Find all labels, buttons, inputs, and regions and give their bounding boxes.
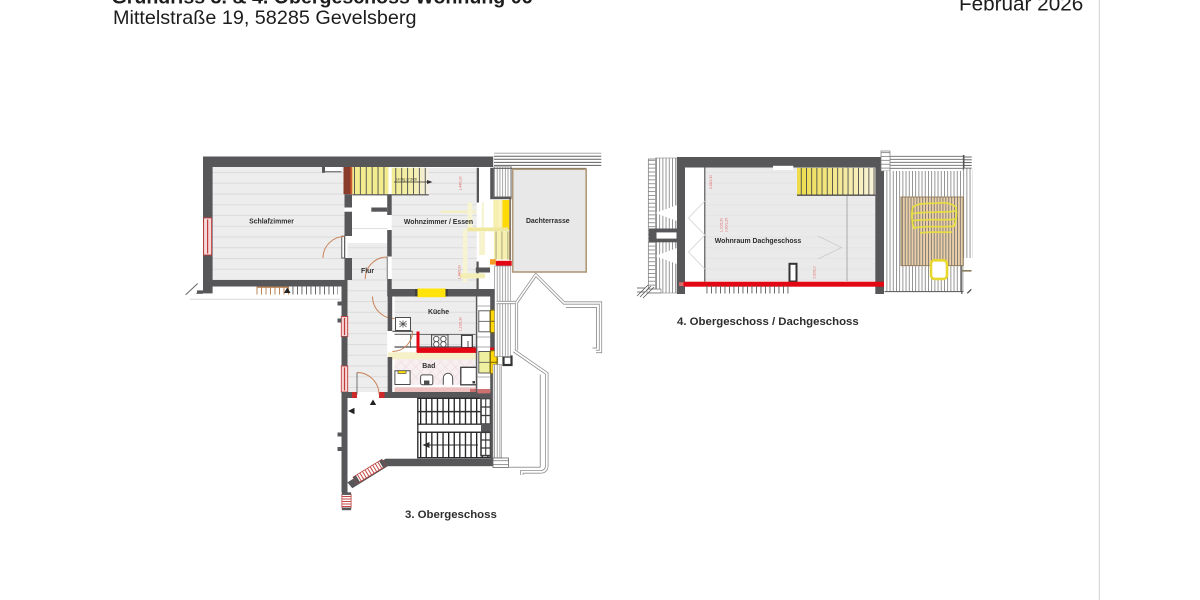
svg-text:1,44/2,30: 1,44/2,30 [458, 265, 462, 279]
svg-text:1,13/2,30: 1,13/2,30 [459, 317, 463, 331]
svg-text:1,44/2,30: 1,44/2,30 [459, 176, 463, 190]
svg-text:14 Stg 17,5/28: 14 Stg 17,5/28 [396, 178, 417, 182]
svg-text:0,90/2,0: 0,90/2,0 [813, 266, 817, 278]
svg-text:1,00/2,30: 1,00/2,30 [720, 218, 724, 232]
svg-text:Dachterrasse: Dachterrasse [526, 218, 570, 225]
svg-text:Schlafzimmer: Schlafzimmer [249, 219, 294, 226]
svg-text:2,26/1,30: 2,26/1,30 [709, 175, 713, 189]
svg-text:Küche: Küche [428, 309, 449, 316]
svg-text:0,90/1,25: 0,90/1,25 [725, 218, 729, 232]
svg-text:3. Obergeschoss: 3. Obergeschoss [405, 509, 497, 521]
svg-text:Wohnraum Dachgeschoss: Wohnraum Dachgeschoss [715, 238, 802, 245]
svg-text:4. Obergeschoss / Dachgeschoss: 4. Obergeschoss / Dachgeschoss [677, 316, 859, 328]
svg-text:Wohnzimmer / Essen: Wohnzimmer / Essen [404, 219, 473, 226]
svg-text:Bad: Bad [422, 363, 435, 370]
svg-text:Flur: Flur [361, 268, 374, 275]
svg-text:Mittelstraße 19, 58285 Gevelsb: Mittelstraße 19, 58285 Gevelsberg [113, 7, 416, 29]
svg-text:Februar 2026: Februar 2026 [959, 0, 1083, 16]
